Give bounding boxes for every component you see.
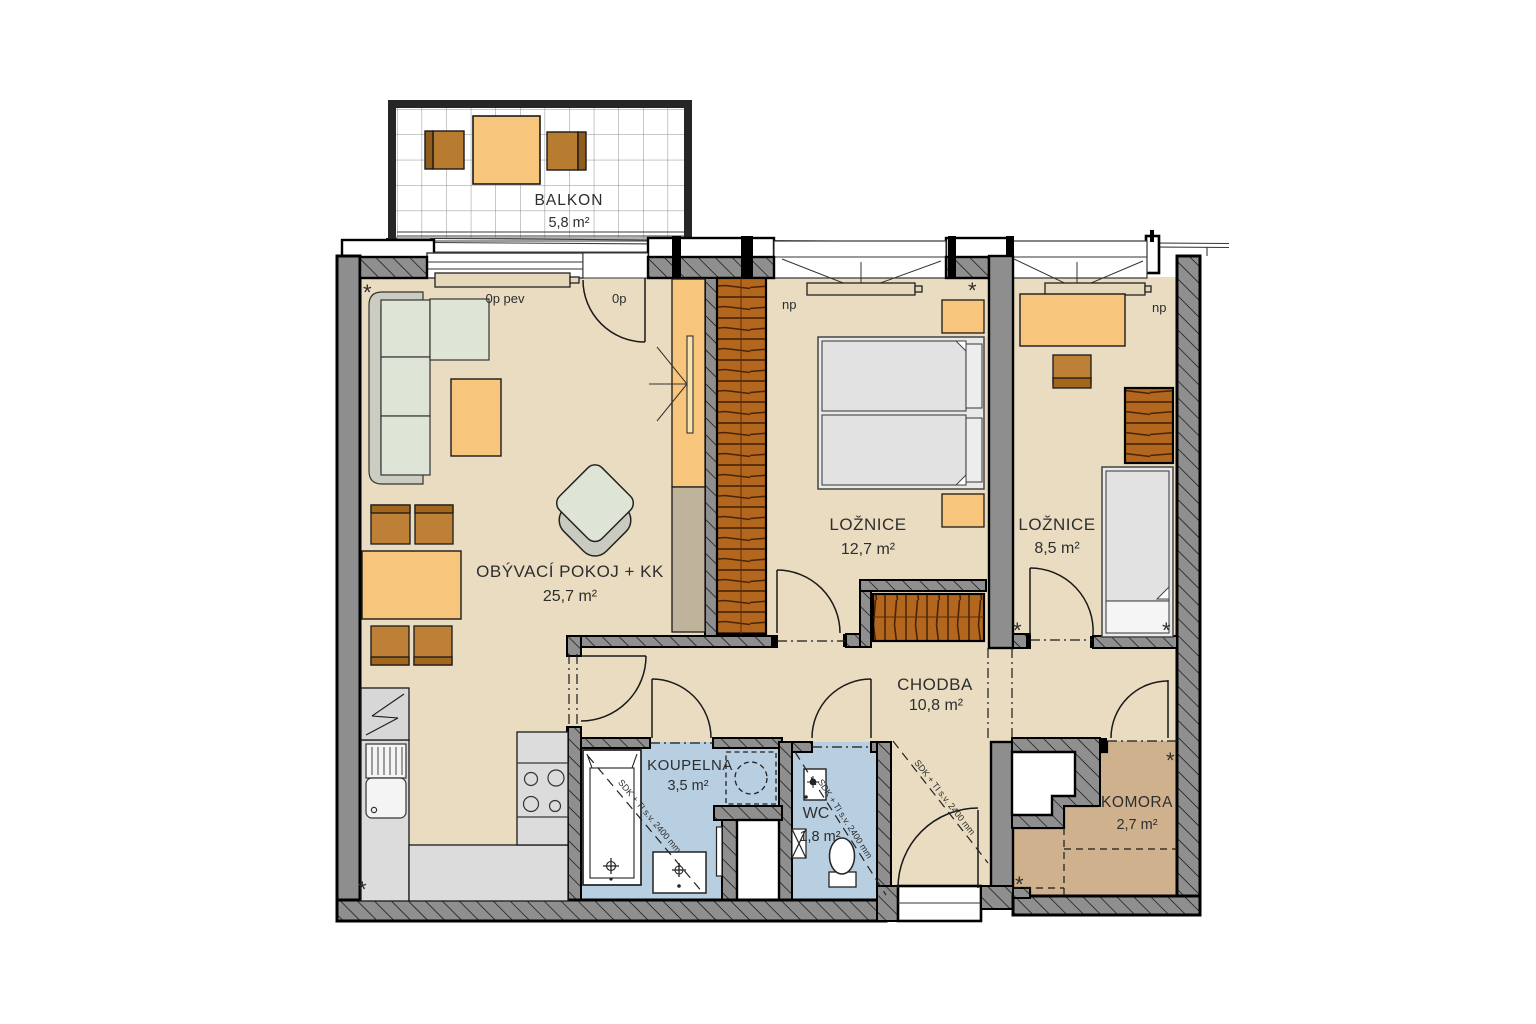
svg-text:3,5 m²: 3,5 m² xyxy=(667,778,708,794)
svg-text:CHODBA: CHODBA xyxy=(897,675,973,694)
svg-text:0p pev: 0p pev xyxy=(485,291,525,306)
svg-text:1,8 m²: 1,8 m² xyxy=(799,829,840,845)
svg-text:*: * xyxy=(1013,618,1022,643)
svg-text:KOUPELNA: KOUPELNA xyxy=(647,757,733,774)
svg-text:KOMORA: KOMORA xyxy=(1101,794,1173,811)
svg-text:0p: 0p xyxy=(612,291,626,306)
svg-text:*: * xyxy=(1162,618,1171,643)
svg-text:*: * xyxy=(968,278,977,303)
svg-text:*: * xyxy=(1166,748,1175,773)
svg-text:*: * xyxy=(358,877,367,902)
svg-text:2,7 m²: 2,7 m² xyxy=(1116,817,1157,833)
svg-text:25,7 m²: 25,7 m² xyxy=(543,588,598,605)
svg-text:*: * xyxy=(363,280,372,305)
svg-text:LOŽNICE: LOŽNICE xyxy=(1018,515,1095,534)
svg-text:10,8 m²: 10,8 m² xyxy=(909,697,964,714)
svg-text:WC: WC xyxy=(803,805,830,822)
svg-text:*: * xyxy=(1015,872,1024,897)
svg-text:12,7 m²: 12,7 m² xyxy=(841,541,896,558)
svg-text:np: np xyxy=(782,297,796,312)
svg-text:5,8 m²: 5,8 m² xyxy=(548,215,589,231)
svg-text:BALKON: BALKON xyxy=(535,192,604,209)
svg-text:8,5 m²: 8,5 m² xyxy=(1034,540,1080,557)
svg-text:LOŽNICE: LOŽNICE xyxy=(829,515,906,534)
svg-text:np: np xyxy=(1152,300,1166,315)
svg-text:OBÝVACÍ POKOJ + KK: OBÝVACÍ POKOJ + KK xyxy=(476,562,664,581)
